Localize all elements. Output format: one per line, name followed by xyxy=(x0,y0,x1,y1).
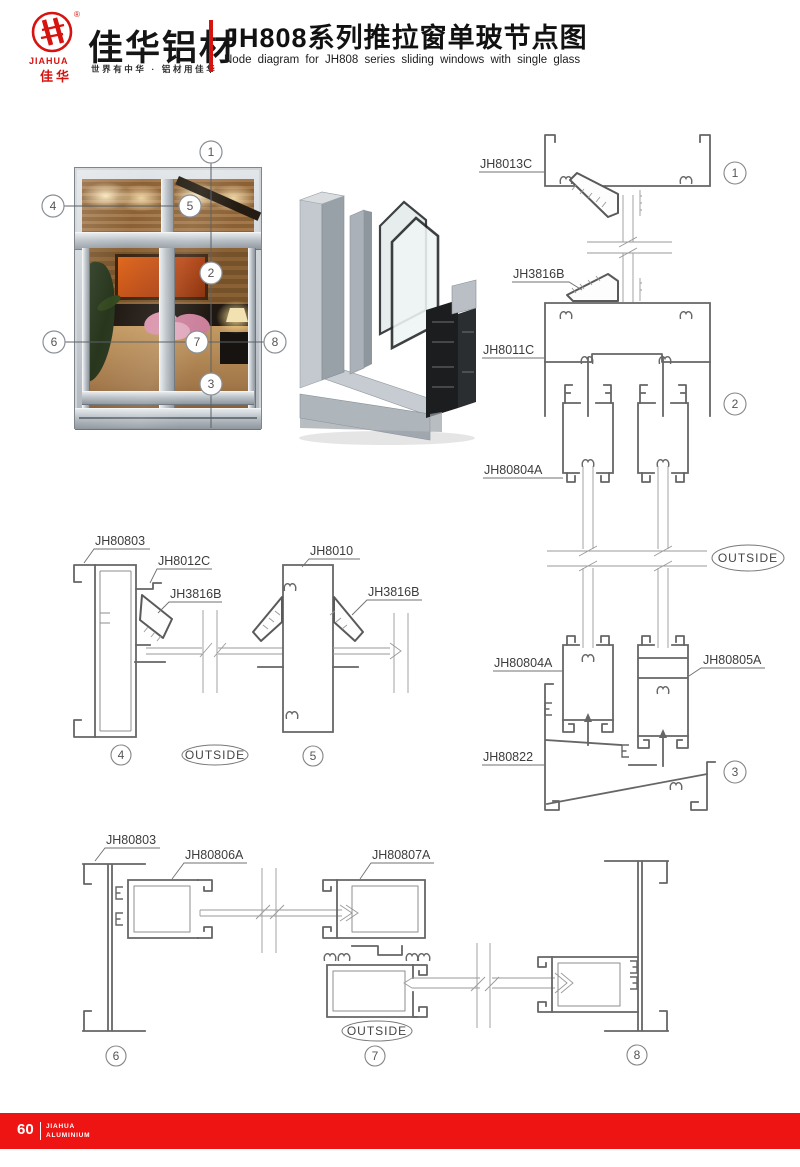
footer-brand-line1: JIAHUA xyxy=(46,1122,90,1131)
glass-lower xyxy=(583,568,668,648)
logo-text-en: JIAHUA xyxy=(29,56,69,66)
footer-bar: 60 JIAHUA ALUMINIUM xyxy=(0,1113,800,1149)
svg-text:7: 7 xyxy=(194,335,201,349)
node-callout-8: 8 xyxy=(627,1045,647,1065)
render-shadow xyxy=(299,431,475,445)
svg-text:OUTSIDE: OUTSIDE xyxy=(347,1024,407,1038)
svg-text:8: 8 xyxy=(634,1048,641,1062)
sash-profile-right xyxy=(538,957,638,1012)
photo-callouts: 1 4 5 2 6 7 8 3 xyxy=(40,140,290,440)
profile-label: JH8013C xyxy=(480,157,532,171)
break-symbol xyxy=(587,237,672,258)
horizontal-section-drawing-bottom: JH80803 JH80806A JH80807A 6 OUTSIDE 7 8 xyxy=(60,825,750,1075)
header-divider xyxy=(209,20,213,72)
frame-profile-left xyxy=(83,864,145,1031)
callout-7: 7 xyxy=(186,331,208,353)
profile-label: JH80807A xyxy=(372,848,431,862)
page-header: ® JIAHUA 佳华 佳华铝材 世界有中华 · 铝材用佳华 JH808系列推拉… xyxy=(0,0,800,100)
svg-text:8: 8 xyxy=(272,335,279,349)
node-callout-7: 7 xyxy=(365,1046,385,1066)
logo-text-cn: 佳华 xyxy=(40,66,72,85)
node-callout-1: 1 xyxy=(724,162,746,184)
page-number: 60 xyxy=(17,1121,34,1138)
svg-text:2: 2 xyxy=(732,397,739,411)
callout-1: 1 xyxy=(200,141,222,163)
footer-brand-line2: ALUMINIUM xyxy=(46,1131,90,1140)
svg-text:1: 1 xyxy=(732,166,739,180)
node-callout-5: 5 xyxy=(303,746,323,766)
vertical-section-drawing: OUTSIDE JH8013C 1 JH3816B JH8011C JH8080… xyxy=(475,118,795,818)
profile-label: JH8011C xyxy=(483,343,534,357)
sash-bottom-right xyxy=(638,636,688,766)
svg-text:7: 7 xyxy=(372,1049,379,1063)
callout-6: 6 xyxy=(43,331,65,353)
horizontal-section-drawing-top: JH80803 JH8012C JH3816B JH8010 JH3816B 4… xyxy=(60,525,470,775)
svg-text:3: 3 xyxy=(732,765,739,779)
profile-label: JH80806A xyxy=(185,848,244,862)
callout-8: 8 xyxy=(264,331,286,353)
profile-3d-render xyxy=(292,182,484,448)
svg-text:6: 6 xyxy=(113,1049,120,1063)
footer-divider xyxy=(40,1122,41,1140)
svg-text:4: 4 xyxy=(118,748,125,762)
node-callout-3: 3 xyxy=(724,761,746,783)
callout-2: 2 xyxy=(200,262,222,284)
head-profile xyxy=(545,135,710,242)
outside-tag: OUTSIDE xyxy=(342,1021,412,1041)
node-callout-4: 4 xyxy=(111,745,131,765)
profile-label: JH8012C xyxy=(158,554,210,568)
glass-upper xyxy=(583,466,668,549)
sash-profile-807A xyxy=(323,880,430,1017)
svg-text:5: 5 xyxy=(310,749,317,763)
profile-label: JH3816B xyxy=(368,585,419,599)
brand-tagline: 世界有中华 · 铝材用佳华 xyxy=(91,63,217,75)
jiahua-logo-icon: ® xyxy=(24,8,84,58)
outside-tag: OUTSIDE xyxy=(712,545,784,571)
profile-label: JH3816B xyxy=(513,267,564,281)
callout-3: 3 xyxy=(200,373,222,395)
page-subtitle: Node diagram for JH808 series sliding wi… xyxy=(224,54,580,66)
svg-text:OUTSIDE: OUTSIDE xyxy=(185,748,245,762)
profile-label: JH8010 xyxy=(310,544,353,558)
profile-label: JH80805A xyxy=(703,653,762,667)
profile-label: JH80803 xyxy=(95,534,145,548)
node-callout-6: 6 xyxy=(106,1046,126,1066)
sash-profile-806A xyxy=(128,880,212,938)
sash-bottom-left xyxy=(563,636,613,745)
callout-5: 5 xyxy=(179,195,201,217)
mullion-profile xyxy=(253,565,363,732)
profile-label: JH3816B xyxy=(170,587,221,601)
svg-text:4: 4 xyxy=(50,199,57,213)
profile-label: JH80803 xyxy=(106,833,156,847)
svg-text:5: 5 xyxy=(187,199,194,213)
svg-text:OUTSIDE: OUTSIDE xyxy=(718,551,778,565)
svg-text:1: 1 xyxy=(208,145,215,159)
registered-mark: ® xyxy=(74,10,80,19)
break-symbol xyxy=(547,546,707,571)
svg-text:6: 6 xyxy=(51,335,58,349)
jamb-profile xyxy=(74,565,172,737)
profile-label: JH80822 xyxy=(483,750,533,764)
svg-text:3: 3 xyxy=(208,377,215,391)
profile-label: JH80804A xyxy=(484,463,543,477)
svg-text:2: 2 xyxy=(208,266,215,280)
callout-4: 4 xyxy=(42,195,64,217)
profile-label: JH80804A xyxy=(494,656,553,670)
footer-brand: JIAHUA ALUMINIUM xyxy=(46,1122,90,1140)
node-callout-2: 2 xyxy=(724,393,746,415)
outside-tag: OUTSIDE xyxy=(182,745,248,765)
sill-profile xyxy=(545,684,715,810)
page-title: JH808系列推拉窗单玻节点图 xyxy=(223,16,588,55)
